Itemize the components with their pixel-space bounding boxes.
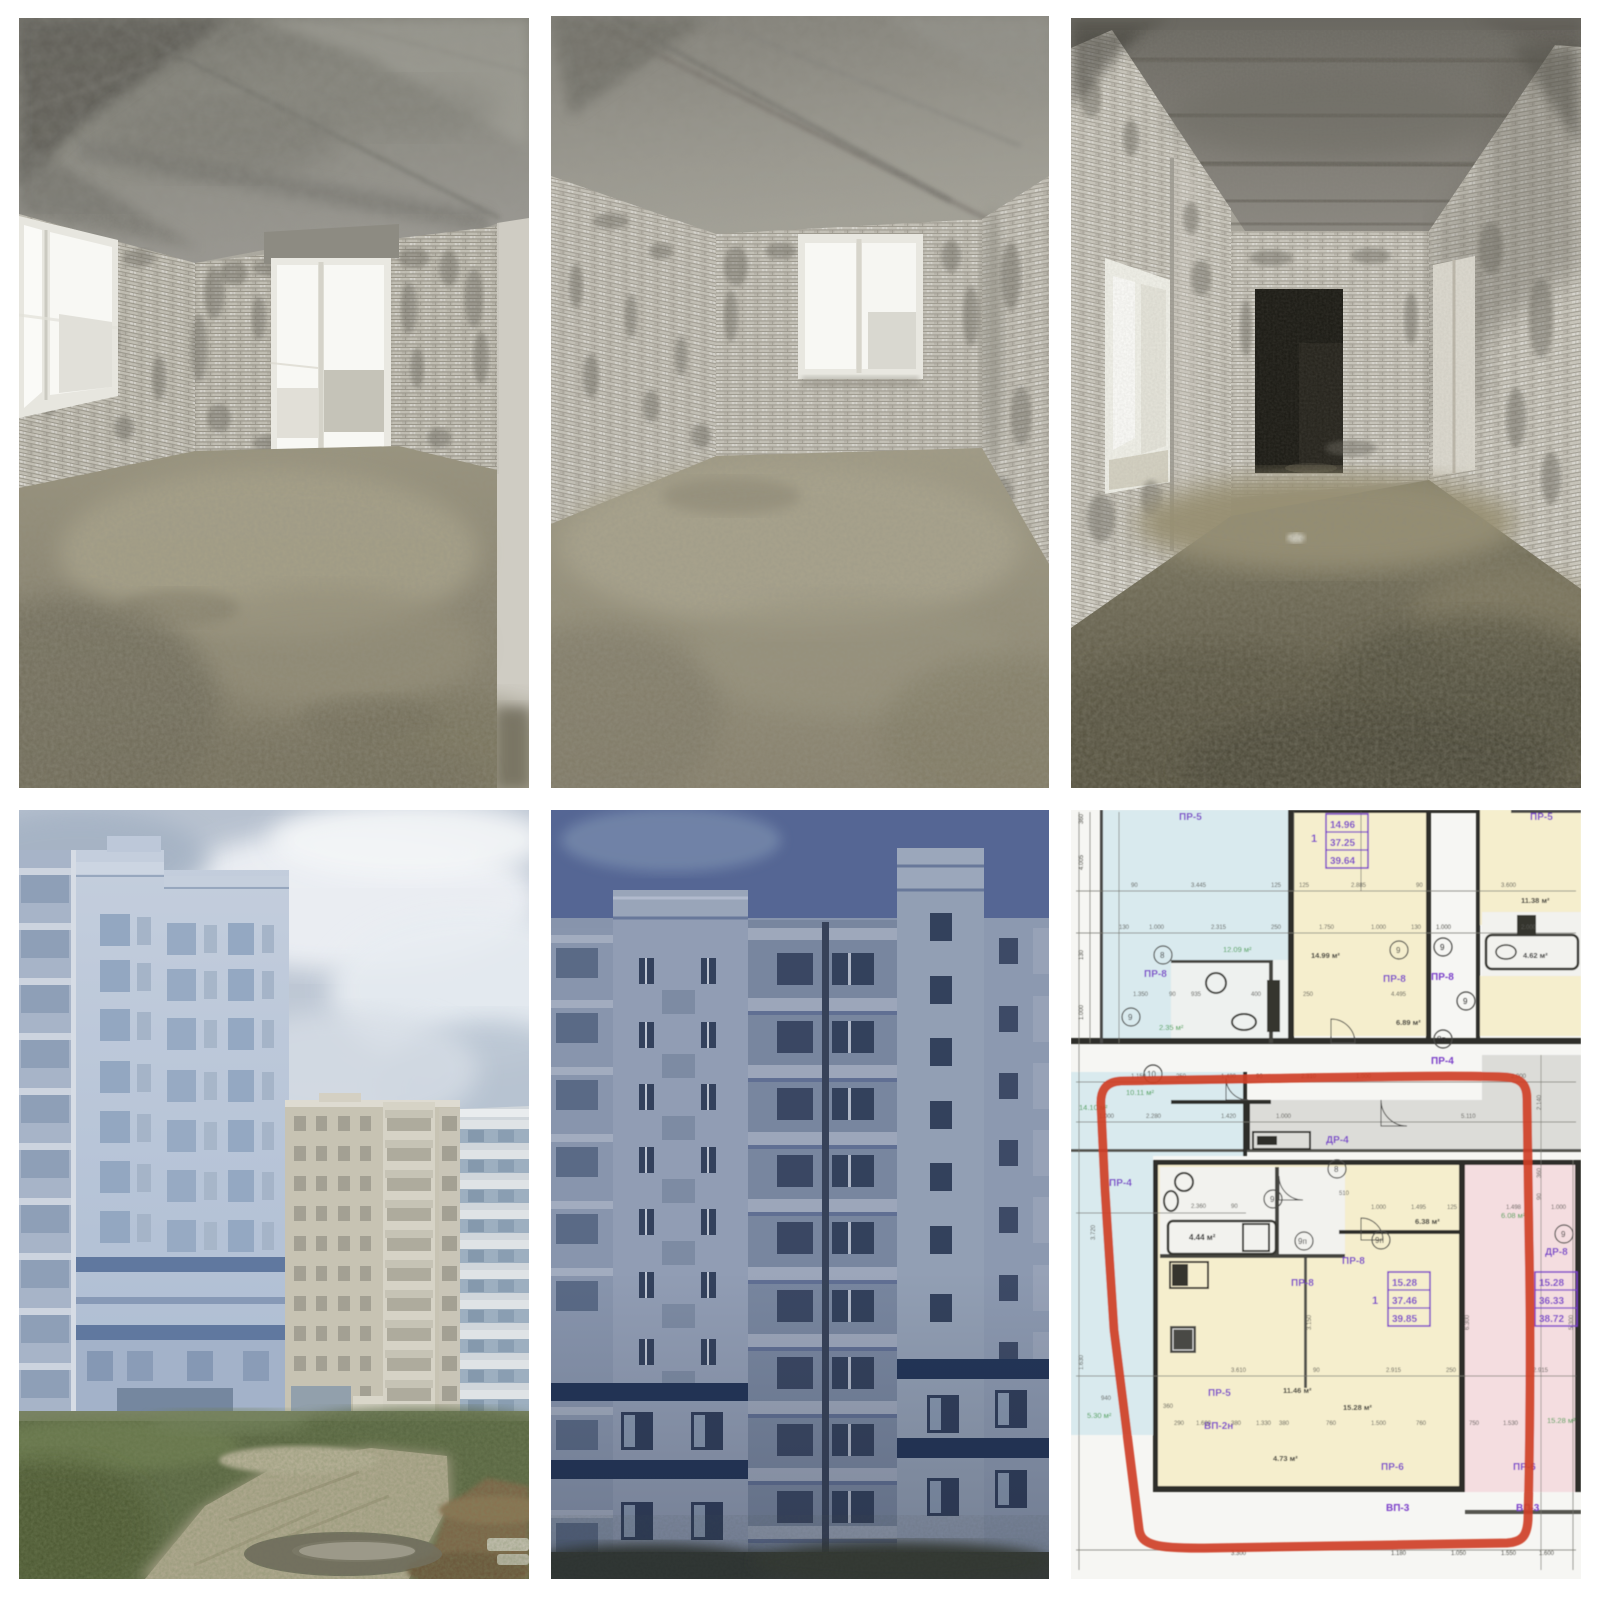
- svg-text:3.720: 3.720: [1091, 1224, 1097, 1240]
- svg-text:250: 250: [1303, 992, 1314, 998]
- svg-text:1.530: 1.530: [1503, 1421, 1519, 1427]
- svg-text:1.000: 1.000: [1276, 1114, 1292, 1120]
- svg-text:750: 750: [1469, 1421, 1480, 1427]
- svg-text:6.08 м²: 6.08 м²: [1501, 1211, 1526, 1220]
- svg-text:4.62 м²: 4.62 м²: [1523, 951, 1548, 960]
- svg-text:125: 125: [1447, 1205, 1458, 1211]
- svg-text:2.280: 2.280: [1146, 1114, 1162, 1120]
- svg-text:ПР-8: ПР-8: [1291, 1278, 1314, 1289]
- svg-text:2.360: 2.360: [1191, 1204, 1207, 1210]
- svg-text:1.500: 1.500: [1371, 1421, 1387, 1427]
- svg-text:90: 90: [1313, 1368, 1320, 1374]
- svg-text:130: 130: [1411, 925, 1422, 931]
- svg-text:125: 125: [1299, 883, 1310, 889]
- svg-text:1.630: 1.630: [1079, 1354, 1085, 1370]
- svg-text:8: 8: [1160, 951, 1165, 960]
- svg-text:15.28 м²: 15.28 м²: [1343, 1403, 1372, 1412]
- svg-text:90: 90: [1537, 1193, 1543, 1200]
- svg-text:38.72: 38.72: [1539, 1314, 1564, 1325]
- svg-text:36.33: 36.33: [1539, 1296, 1564, 1307]
- svg-text:1.000: 1.000: [1371, 1205, 1387, 1211]
- svg-text:1.350: 1.350: [1133, 992, 1149, 998]
- svg-text:1: 1: [1372, 1295, 1378, 1307]
- svg-text:1.000: 1.000: [1371, 925, 1387, 931]
- svg-text:1.420: 1.420: [1221, 1114, 1237, 1120]
- svg-text:380: 380: [1279, 1421, 1290, 1427]
- svg-text:125: 125: [1271, 883, 1282, 889]
- svg-text:1.180: 1.180: [1391, 1551, 1407, 1557]
- svg-text:8: 8: [1334, 1165, 1339, 1174]
- svg-text:1.550: 1.550: [1501, 1551, 1517, 1557]
- svg-text:9п: 9п: [1298, 1237, 1307, 1246]
- svg-text:5.30 м²: 5.30 м²: [1087, 1411, 1112, 1420]
- svg-text:250: 250: [1271, 925, 1282, 931]
- svg-text:9: 9: [1396, 946, 1401, 955]
- svg-text:250: 250: [1446, 1368, 1457, 1374]
- svg-text:90: 90: [1131, 883, 1138, 889]
- svg-text:1.000: 1.000: [1079, 1004, 1085, 1020]
- svg-text:1.495: 1.495: [1411, 1205, 1427, 1211]
- svg-text:400: 400: [1251, 992, 1262, 998]
- svg-text:4.495: 4.495: [1391, 992, 1407, 998]
- svg-text:9: 9: [1270, 1195, 1275, 1204]
- svg-text:12.09 м²: 12.09 м²: [1223, 945, 1252, 954]
- svg-text:2.315: 2.315: [1211, 925, 1227, 931]
- svg-text:2.35 м²: 2.35 м²: [1159, 1023, 1184, 1032]
- svg-text:6.38 м²: 6.38 м²: [1415, 1217, 1440, 1226]
- svg-text:510: 510: [1339, 1191, 1350, 1197]
- svg-text:1.330: 1.330: [1256, 1421, 1272, 1427]
- svg-text:9: 9: [1128, 1013, 1133, 1022]
- svg-text:1.750: 1.750: [1319, 925, 1335, 931]
- svg-text:15.28 м²: 15.28 м²: [1547, 1416, 1576, 1425]
- svg-text:15.28: 15.28: [1392, 1278, 1417, 1289]
- svg-text:2.885: 2.885: [1351, 883, 1367, 889]
- svg-text:ДР-8: ДР-8: [1545, 1247, 1568, 1258]
- svg-text:6.89 м²: 6.89 м²: [1396, 1018, 1421, 1027]
- svg-text:ПР-5: ПР-5: [1208, 1388, 1231, 1399]
- svg-text:2.140: 2.140: [1537, 1094, 1543, 1110]
- svg-text:3.600: 3.600: [1501, 883, 1517, 889]
- svg-text:14.99 м²: 14.99 м²: [1311, 951, 1340, 960]
- svg-text:935: 935: [1191, 992, 1202, 998]
- svg-text:11.46 м²: 11.46 м²: [1283, 1386, 1312, 1395]
- svg-text:760: 760: [1326, 1421, 1337, 1427]
- svg-text:380: 380: [1231, 1421, 1242, 1427]
- svg-text:15.28: 15.28: [1539, 1278, 1564, 1289]
- svg-text:360: 360: [1537, 1167, 1543, 1178]
- svg-text:3.445: 3.445: [1191, 883, 1207, 889]
- svg-text:ДР-4: ДР-4: [1326, 1135, 1349, 1146]
- svg-text:2.000: 2.000: [1521, 925, 1537, 931]
- svg-text:ПР-4: ПР-4: [1431, 1056, 1454, 1067]
- svg-text:ПР-5: ПР-5: [1179, 812, 1202, 823]
- svg-text:90: 90: [1416, 883, 1423, 889]
- svg-text:130: 130: [1079, 949, 1085, 960]
- svg-text:360: 360: [1079, 813, 1085, 824]
- svg-text:130: 130: [1119, 925, 1130, 931]
- svg-text:11.38 м²: 11.38 м²: [1521, 896, 1550, 905]
- svg-text:3.150: 3.150: [1307, 1314, 1313, 1330]
- svg-text:ПР-8: ПР-8: [1431, 972, 1454, 983]
- svg-text:1: 1: [1311, 833, 1317, 845]
- svg-text:2.915: 2.915: [1533, 1368, 1549, 1374]
- svg-text:14.96: 14.96: [1330, 820, 1355, 831]
- svg-text:ПР-6: ПР-6: [1381, 1462, 1404, 1473]
- svg-text:1.000: 1.000: [1149, 925, 1165, 931]
- svg-text:5.110: 5.110: [1461, 1114, 1476, 1120]
- svg-text:9: 9: [1440, 943, 1445, 952]
- svg-text:5.300: 5.300: [1569, 1314, 1575, 1330]
- svg-text:ПР-8: ПР-8: [1383, 974, 1406, 985]
- svg-text:39.85: 39.85: [1392, 1314, 1417, 1325]
- svg-text:39.64: 39.64: [1330, 856, 1355, 867]
- svg-text:37.46: 37.46: [1392, 1296, 1417, 1307]
- svg-text:ПР-4: ПР-4: [1109, 1178, 1132, 1189]
- svg-text:10.11 м²: 10.11 м²: [1126, 1088, 1154, 1097]
- svg-text:8п: 8п: [1437, 1035, 1446, 1044]
- svg-text:360: 360: [1163, 1404, 1174, 1410]
- svg-text:9: 9: [1463, 997, 1468, 1006]
- svg-text:760: 760: [1416, 1421, 1427, 1427]
- svg-text:940: 940: [1101, 1396, 1112, 1402]
- svg-text:1.600: 1.600: [1196, 1421, 1212, 1427]
- svg-text:90: 90: [1169, 992, 1176, 998]
- svg-text:1.000: 1.000: [1551, 1205, 1567, 1211]
- svg-text:2.915: 2.915: [1386, 1368, 1402, 1374]
- svg-text:ПР-8: ПР-8: [1342, 1256, 1365, 1267]
- svg-text:37.25: 37.25: [1330, 838, 1355, 849]
- svg-text:1.000: 1.000: [1436, 925, 1452, 931]
- svg-text:ПР-5: ПР-5: [1530, 812, 1553, 823]
- svg-text:ВП-3: ВП-3: [1386, 1503, 1410, 1514]
- svg-text:ПР-8: ПР-8: [1144, 969, 1167, 980]
- svg-text:4.73 м²: 4.73 м²: [1273, 1454, 1298, 1463]
- svg-text:290: 290: [1174, 1421, 1185, 1427]
- svg-text:1.050: 1.050: [1451, 1551, 1467, 1557]
- svg-text:9: 9: [1561, 1230, 1566, 1239]
- svg-text:90: 90: [1231, 1204, 1238, 1210]
- svg-text:1.600: 1.600: [1539, 1551, 1555, 1557]
- svg-text:6.300: 6.300: [1465, 1314, 1471, 1330]
- svg-text:3.610: 3.610: [1231, 1368, 1247, 1374]
- svg-text:4.005: 4.005: [1079, 854, 1085, 870]
- svg-text:4.44 м²: 4.44 м²: [1189, 1233, 1216, 1242]
- svg-text:1.498: 1.498: [1506, 1205, 1522, 1211]
